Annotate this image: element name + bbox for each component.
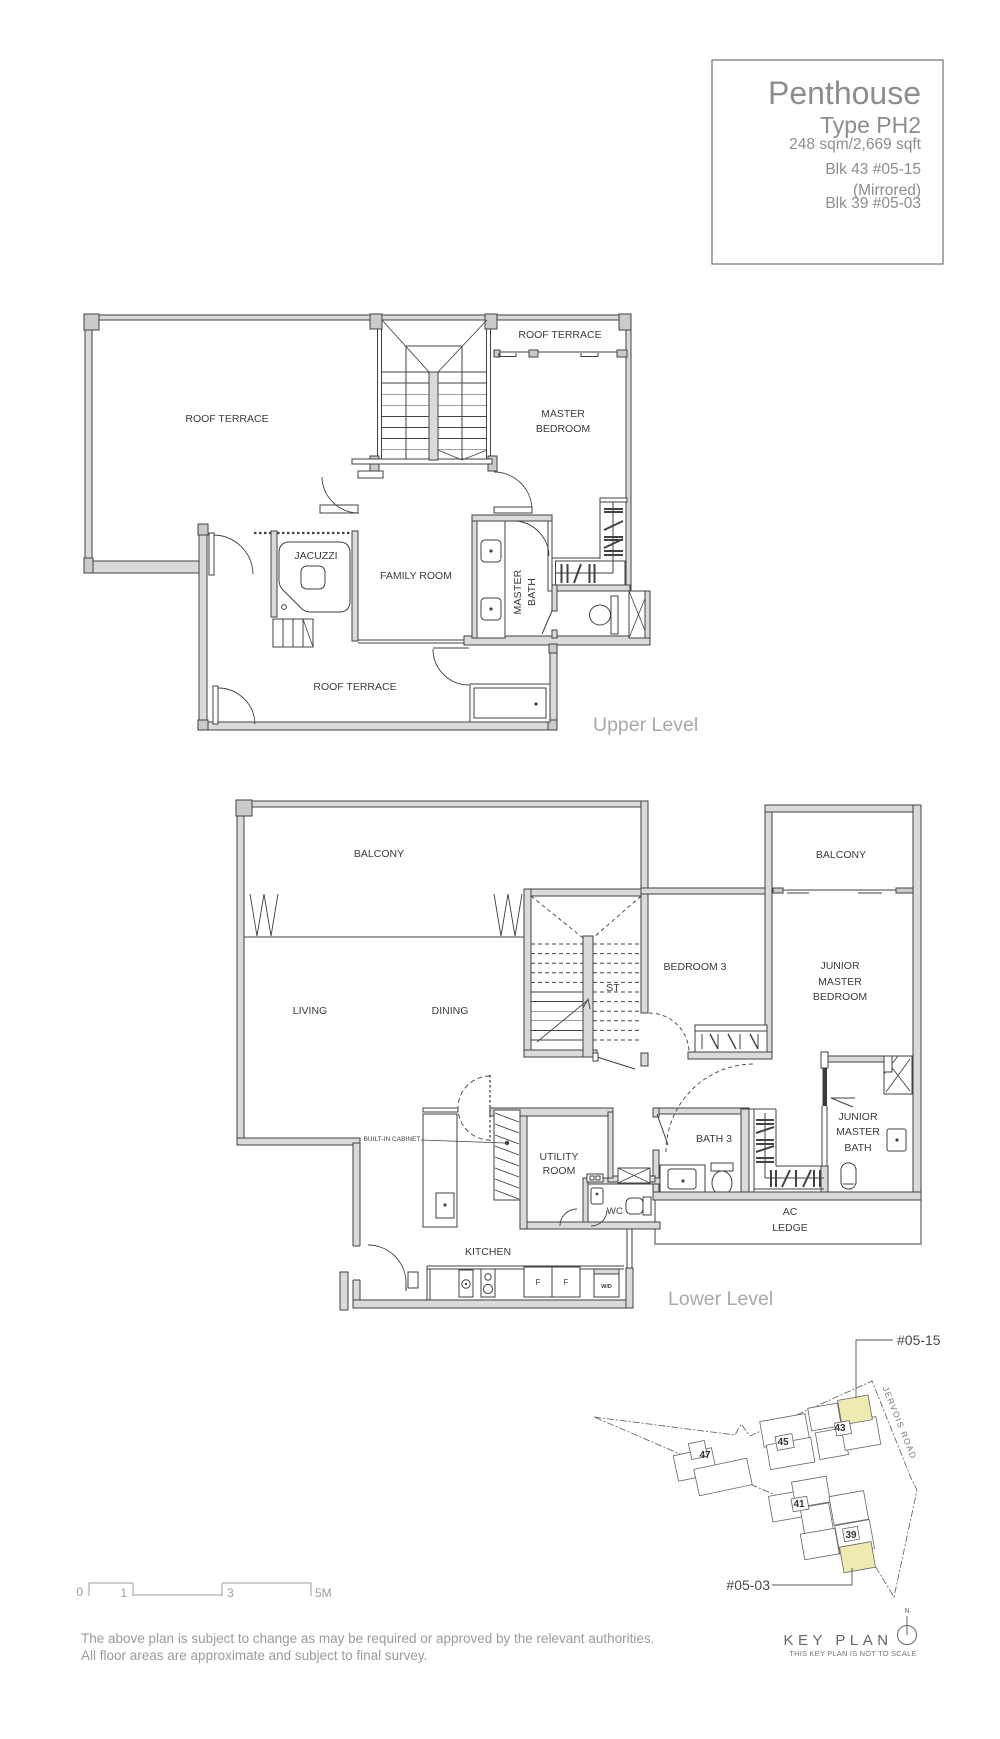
svg-text:WC: WC bbox=[607, 1206, 623, 1217]
svg-text:BEDROOM: BEDROOM bbox=[813, 991, 867, 1003]
svg-text:43: 43 bbox=[834, 1423, 846, 1434]
svg-text:N: N bbox=[904, 1608, 909, 1615]
svg-text:47: 47 bbox=[699, 1450, 711, 1461]
svg-text:3: 3 bbox=[227, 1586, 234, 1600]
svg-text:BALCONY: BALCONY bbox=[354, 848, 404, 860]
svg-text:FAMILY ROOM: FAMILY ROOM bbox=[380, 570, 452, 582]
svg-text:MASTER: MASTER bbox=[512, 569, 524, 614]
svg-text:Blk 39 #05-03: Blk 39 #05-03 bbox=[825, 195, 921, 212]
svg-text:Blk 43 #05-15: Blk 43 #05-15 bbox=[825, 161, 921, 178]
svg-text:All floor areas are approximat: All floor areas are approximate and subj… bbox=[81, 1648, 427, 1663]
svg-text:0: 0 bbox=[76, 1585, 83, 1599]
svg-text:AC: AC bbox=[783, 1206, 798, 1218]
svg-text:KITCHEN: KITCHEN bbox=[465, 1246, 511, 1258]
svg-text:BATH: BATH bbox=[844, 1142, 871, 1154]
svg-text:Type PH2: Type PH2 bbox=[820, 112, 921, 138]
svg-text:MASTER: MASTER bbox=[818, 976, 862, 988]
svg-text:ROOM: ROOM bbox=[543, 1165, 576, 1177]
svg-text:248 sqm/2,669 sqft: 248 sqm/2,669 sqft bbox=[789, 136, 922, 153]
svg-text:BUILT-IN CABINET: BUILT-IN CABINET bbox=[364, 1136, 421, 1143]
svg-text:LIVING: LIVING bbox=[293, 1005, 327, 1017]
svg-text:39: 39 bbox=[845, 1530, 857, 1541]
svg-text:KEY PLAN: KEY PLAN bbox=[783, 1632, 892, 1649]
svg-text:Penthouse: Penthouse bbox=[768, 75, 921, 111]
svg-text:JACUZZI: JACUZZI bbox=[294, 550, 337, 562]
svg-text:ROOF TERRACE: ROOF TERRACE bbox=[185, 413, 268, 425]
svg-text:F: F bbox=[564, 1278, 569, 1287]
svg-text:1: 1 bbox=[120, 1586, 127, 1600]
svg-text:Lower Level: Lower Level bbox=[668, 1288, 773, 1310]
svg-text:ST: ST bbox=[606, 982, 620, 994]
svg-text:MASTER: MASTER bbox=[541, 408, 585, 420]
svg-text:MASTER: MASTER bbox=[836, 1126, 880, 1138]
svg-text:W/D: W/D bbox=[601, 1284, 612, 1290]
svg-text:BATH 3: BATH 3 bbox=[696, 1133, 732, 1145]
svg-text:BATH: BATH bbox=[526, 578, 538, 606]
svg-text:BEDROOM 3: BEDROOM 3 bbox=[663, 961, 726, 973]
svg-text:ROOF TERRACE: ROOF TERRACE bbox=[313, 681, 396, 693]
svg-text:45: 45 bbox=[777, 1437, 789, 1448]
svg-text:BALCONY: BALCONY bbox=[816, 849, 866, 861]
svg-text:UTILITY: UTILITY bbox=[539, 1151, 578, 1163]
svg-text:#05-15: #05-15 bbox=[897, 1332, 941, 1348]
svg-text:F: F bbox=[536, 1278, 541, 1287]
svg-text:LEDGE: LEDGE bbox=[772, 1222, 808, 1234]
svg-text:THIS KEY PLAN IS NOT TO SCALE: THIS KEY PLAN IS NOT TO SCALE bbox=[789, 1649, 916, 1658]
svg-text:BEDROOM: BEDROOM bbox=[536, 423, 590, 435]
svg-text:5M: 5M bbox=[315, 1586, 332, 1600]
svg-text:JUNIOR: JUNIOR bbox=[838, 1111, 878, 1123]
svg-text:ROOF TERRACE: ROOF TERRACE bbox=[518, 329, 601, 341]
svg-text:#05-03: #05-03 bbox=[726, 1577, 770, 1593]
svg-text:Upper Level: Upper Level bbox=[593, 714, 698, 736]
svg-text:The above plan is subject to c: The above plan is subject to change as m… bbox=[81, 1631, 654, 1646]
svg-text:DINING: DINING bbox=[432, 1005, 469, 1017]
svg-text:JUNIOR: JUNIOR bbox=[820, 960, 860, 972]
svg-text:41: 41 bbox=[793, 1499, 805, 1510]
